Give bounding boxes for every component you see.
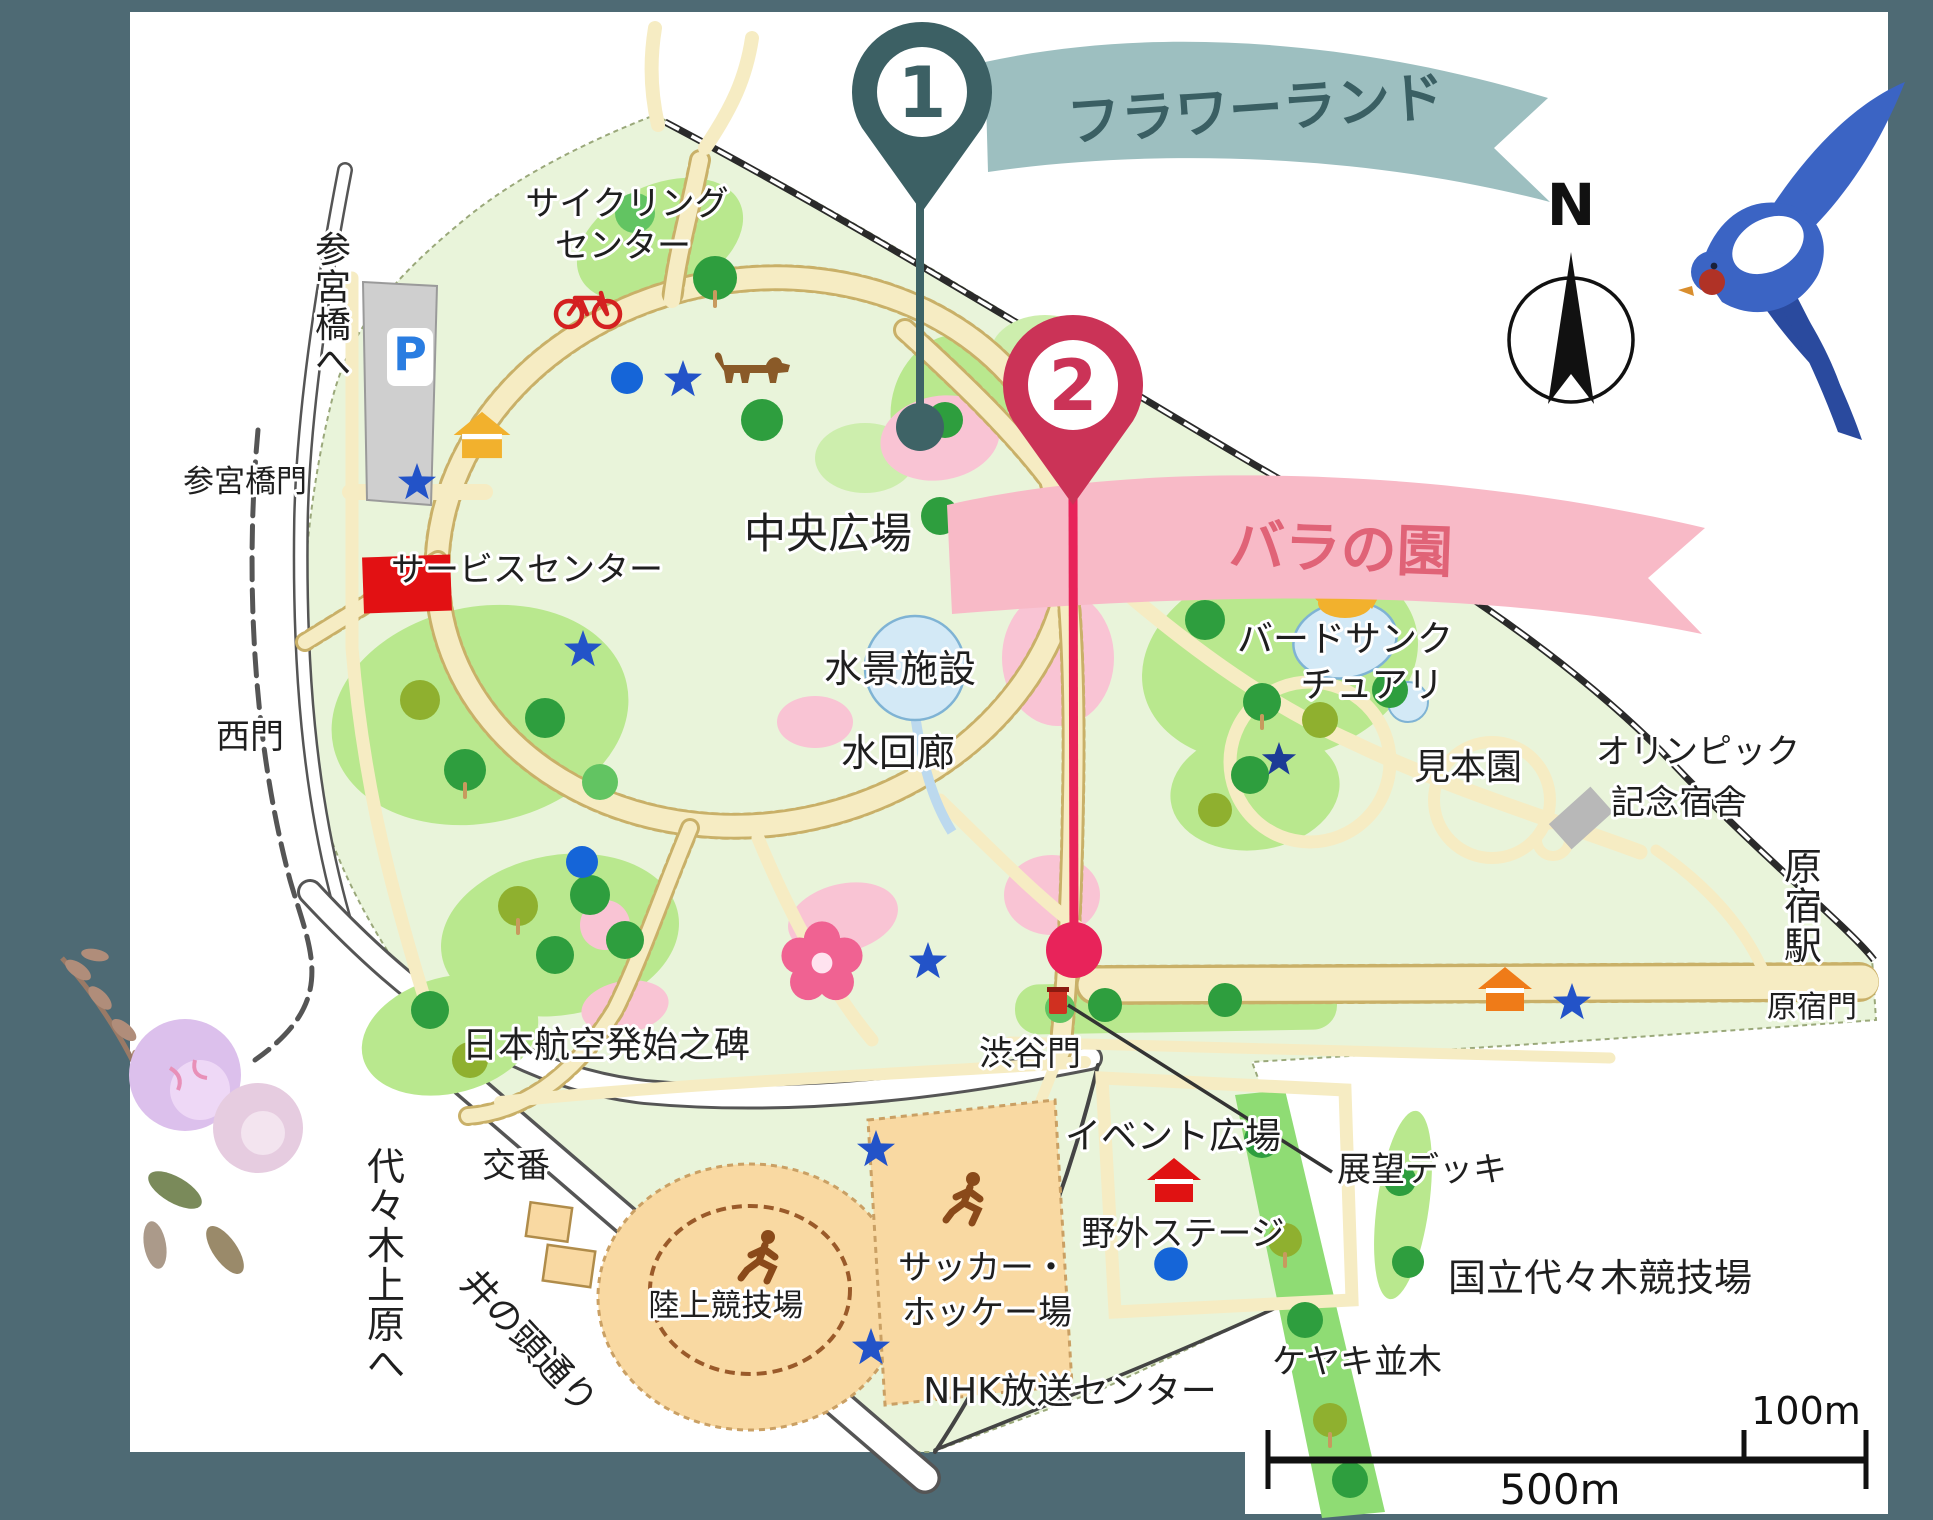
map-label-water-feature: 水景施設 [824,647,976,691]
map-label-bird-sanctuary-1: バードサンク [1237,619,1453,660]
marker-1-number: 1 [898,52,947,134]
map-label-parking-p: P [393,327,427,381]
map-label-bird-sanctuary-2: チュアリ [1300,665,1443,706]
map-label-sangubashi-e: 参宮橋へ [315,230,351,383]
scale-100m-label: 100m [1751,1389,1861,1433]
map-label-yoyogi-uehara-e: 代々木上原へ [367,1145,405,1387]
dot-icon-stage [1154,1247,1188,1281]
parking-area [363,282,437,505]
map-label-zelkova-row: ケヤキ並木 [1272,1342,1442,1382]
map-label-sangubashi-gate: 参宮橋門 [183,464,307,500]
map-label-soccer-2: ホッケー場 [902,1293,1072,1333]
park-map-art: サイクリングセンター参宮橋へ参宮橋門サービスセンター西門中央広場水景施設水回廊バ… [0,0,1933,1520]
map-label-national-stadium: 国立代々木競技場 [1448,1256,1752,1300]
map-label-water-corridor: 水回廊 [841,731,955,775]
map-canvas: サイクリングセンター参宮橋へ参宮橋門サービスセンター西門中央広場水景施設水回廊バ… [0,0,1933,1520]
map-label-observation-deck: 展望デッキ [1337,1150,1507,1190]
marker-2-dot [1046,922,1102,978]
dot-icon-west [566,846,598,878]
dot-icon-cycling [611,362,643,394]
map-label-outdoor-stage: 野外ステージ [1081,1214,1284,1254]
map-label-olympic-1: オリンピック [1596,732,1800,772]
marker-2-banner-label: バラの園 [1228,513,1454,586]
map-label-police-box: 交番 [482,1146,550,1186]
map-label-olympic-2: 記念宿舎 [1611,783,1747,823]
map-label-athletics-field: 陸上競技場 [649,1288,804,1324]
map-label-harajuku-sta: 原宿駅 [1784,845,1822,968]
scale-500m-label: 500m [1499,1465,1620,1514]
marker-2-number: 2 [1049,345,1098,427]
map-label-central-square: 中央広場 [744,509,912,558]
map-label-event-plaza: イベント広場 [1065,1116,1281,1157]
map-label-cycling-center-1: サイクリング [525,184,728,224]
map-label-shibuya-gate: 渋谷門 [979,1034,1081,1074]
shibuya-gate-marker [1047,987,1069,1014]
map-label-harajuku-gate: 原宿門 [1767,990,1857,1025]
map-label-jal-monument: 日本航空発始之碑 [462,1025,750,1066]
map-label-nhk-center: NHK放送センター [923,1371,1217,1412]
map-label-cycling-center-2: センター [555,226,691,266]
map-label-service-center: サービスセンター [391,550,663,590]
map-label-soccer-1: サッカー・ [898,1248,1068,1288]
marker-1-dot [896,403,944,451]
map-label-sample-garden: 見本園 [1414,747,1522,788]
map-label-west-gate: 西門 [216,717,284,757]
compass-n-label: N [1547,171,1596,239]
